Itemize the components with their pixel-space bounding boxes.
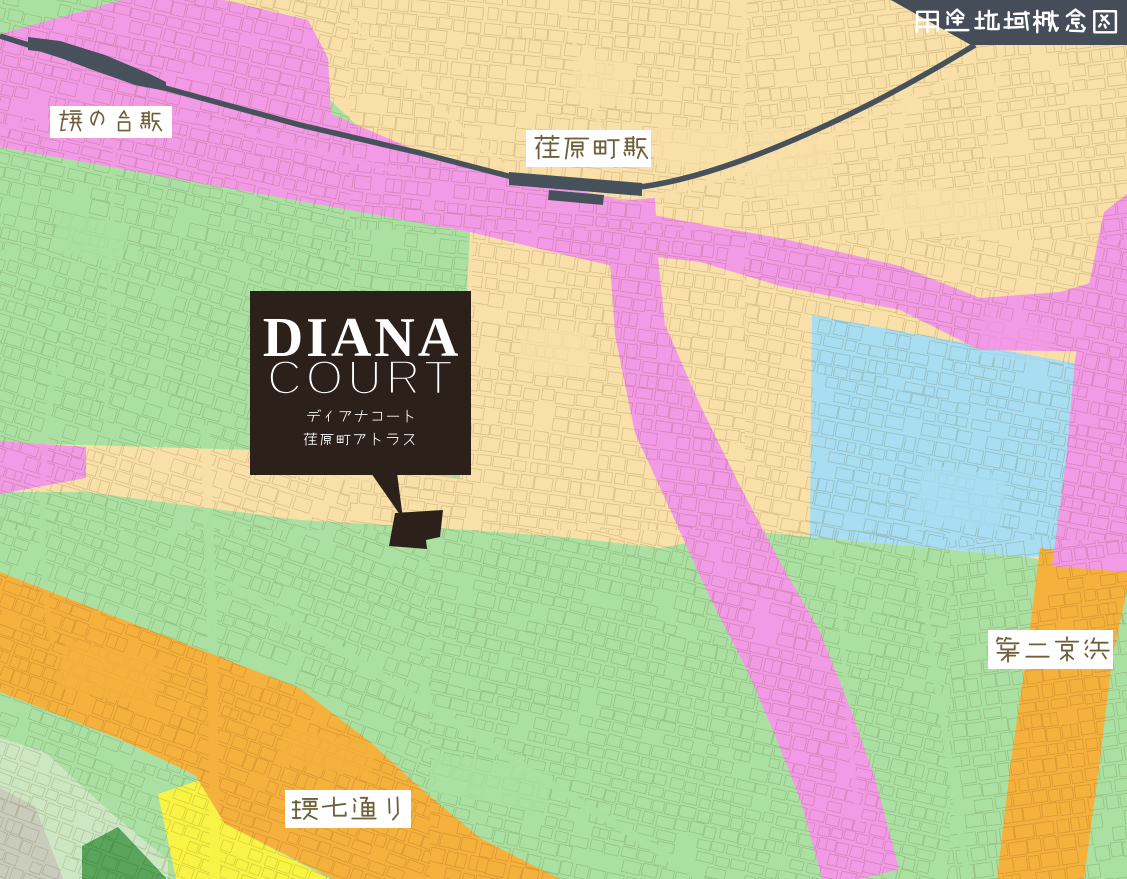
svg-text:COURT: COURT xyxy=(267,352,457,405)
